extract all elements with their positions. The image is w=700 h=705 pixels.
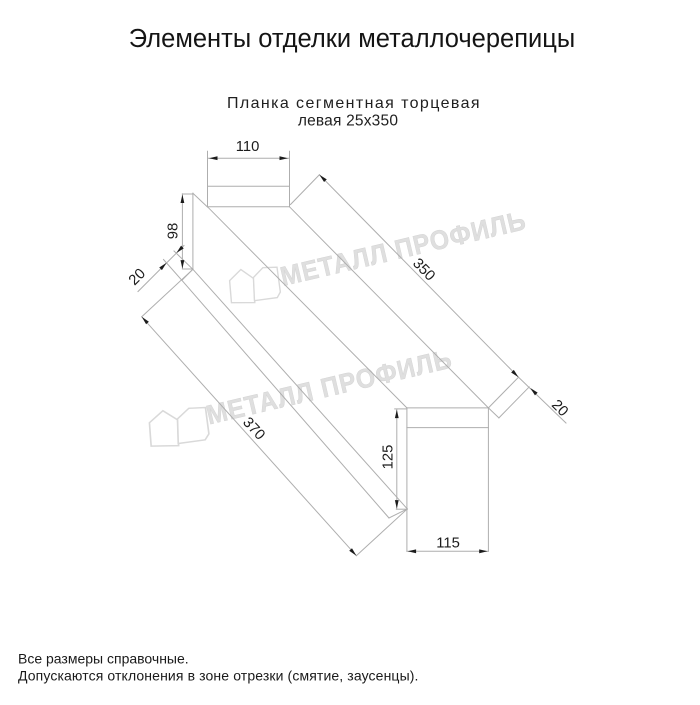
svg-text:115: 115 xyxy=(436,536,460,552)
svg-text:110: 110 xyxy=(236,139,260,155)
svg-text:левая 25х350: левая 25х350 xyxy=(298,113,398,130)
svg-text:125: 125 xyxy=(381,445,397,470)
svg-text:Все размеры справочные.: Все размеры справочные. xyxy=(18,651,189,667)
svg-text:Элементы отделки металлочерепи: Элементы отделки металлочерепицы xyxy=(129,25,575,53)
svg-text:98: 98 xyxy=(165,223,181,239)
svg-text:Допускаются отклонения в зоне: Допускаются отклонения в зоне отрезки (с… xyxy=(18,668,419,684)
svg-text:Планка сегментная торцевая: Планка сегментная торцевая xyxy=(227,95,481,112)
